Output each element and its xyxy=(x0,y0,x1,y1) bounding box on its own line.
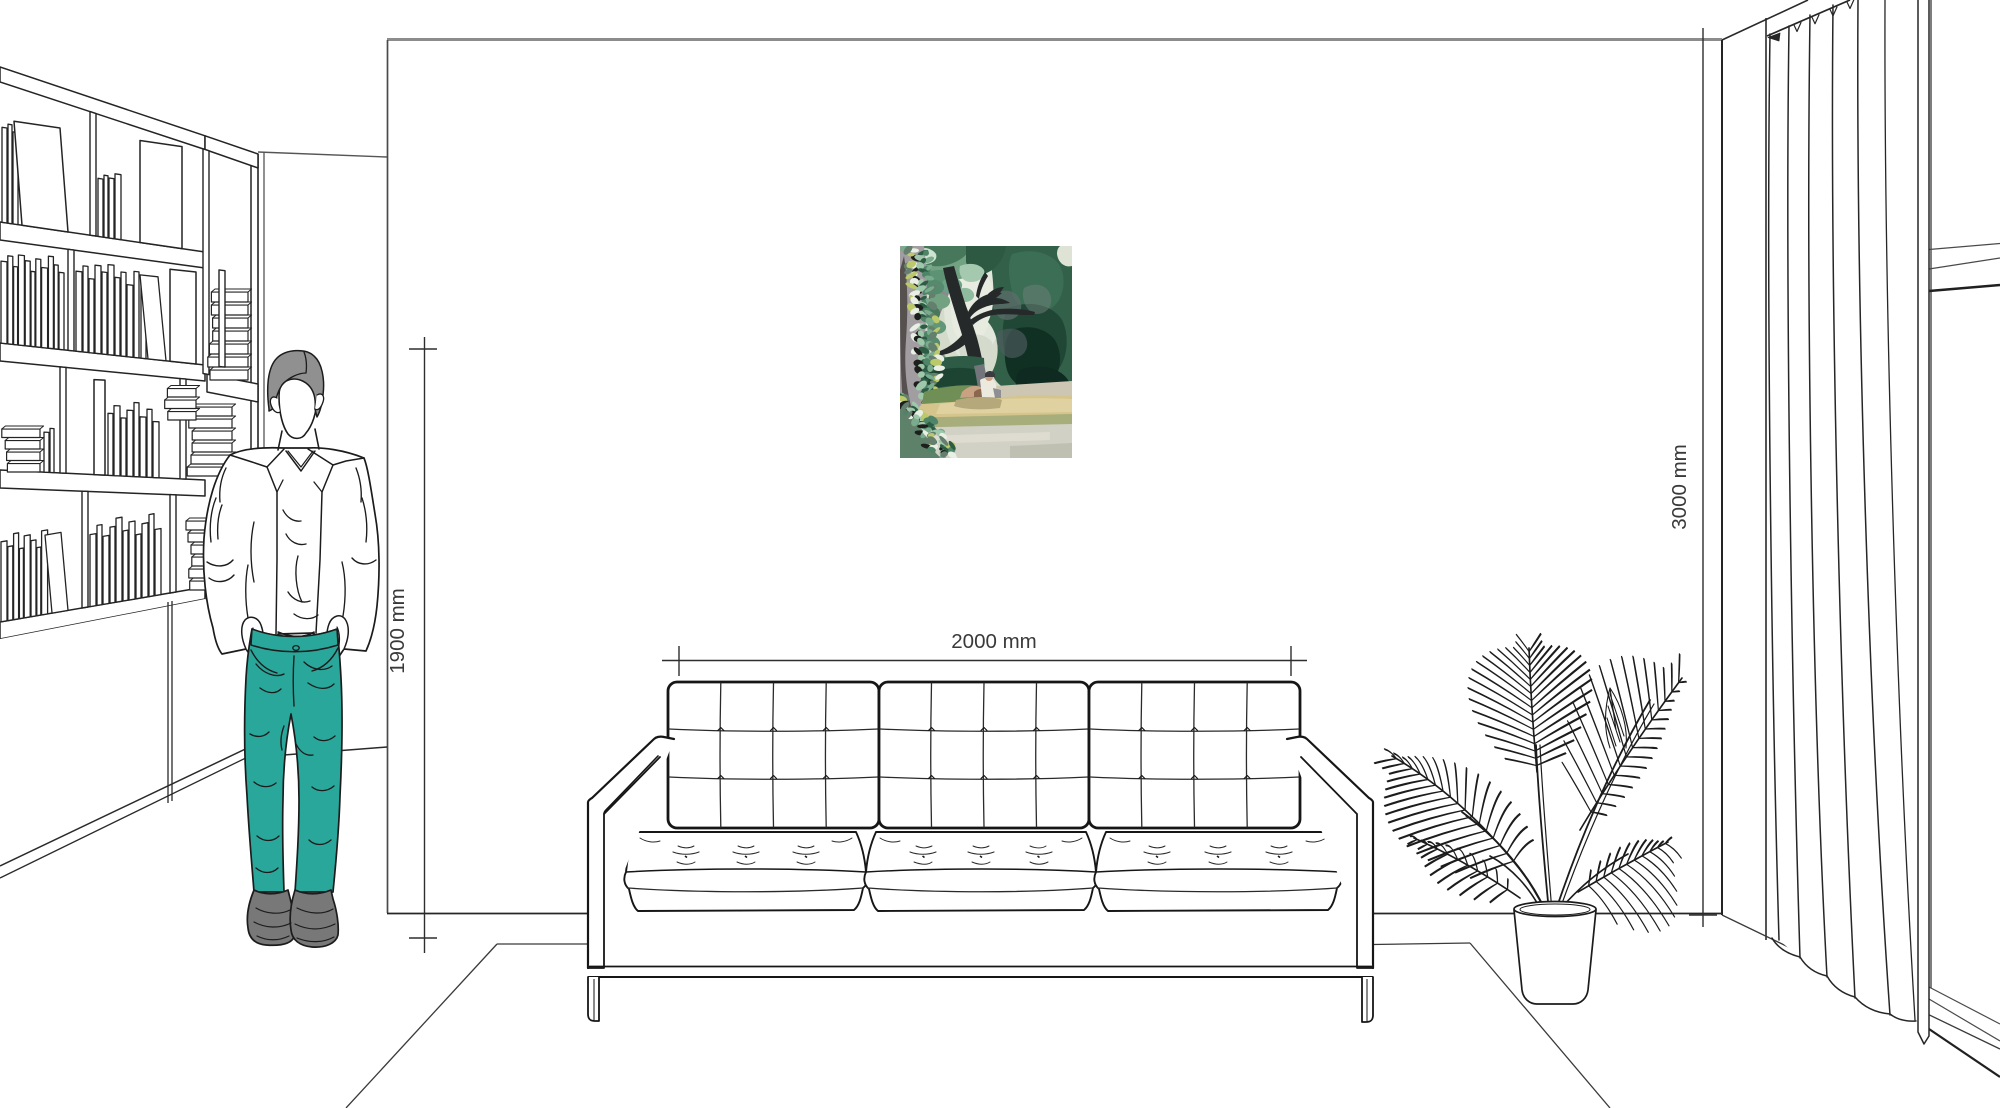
svg-text:1900 mm: 1900 mm xyxy=(386,588,409,673)
svg-text:2000 mm: 2000 mm xyxy=(951,630,1036,653)
svg-text:3000 mm: 3000 mm xyxy=(1668,444,1691,529)
